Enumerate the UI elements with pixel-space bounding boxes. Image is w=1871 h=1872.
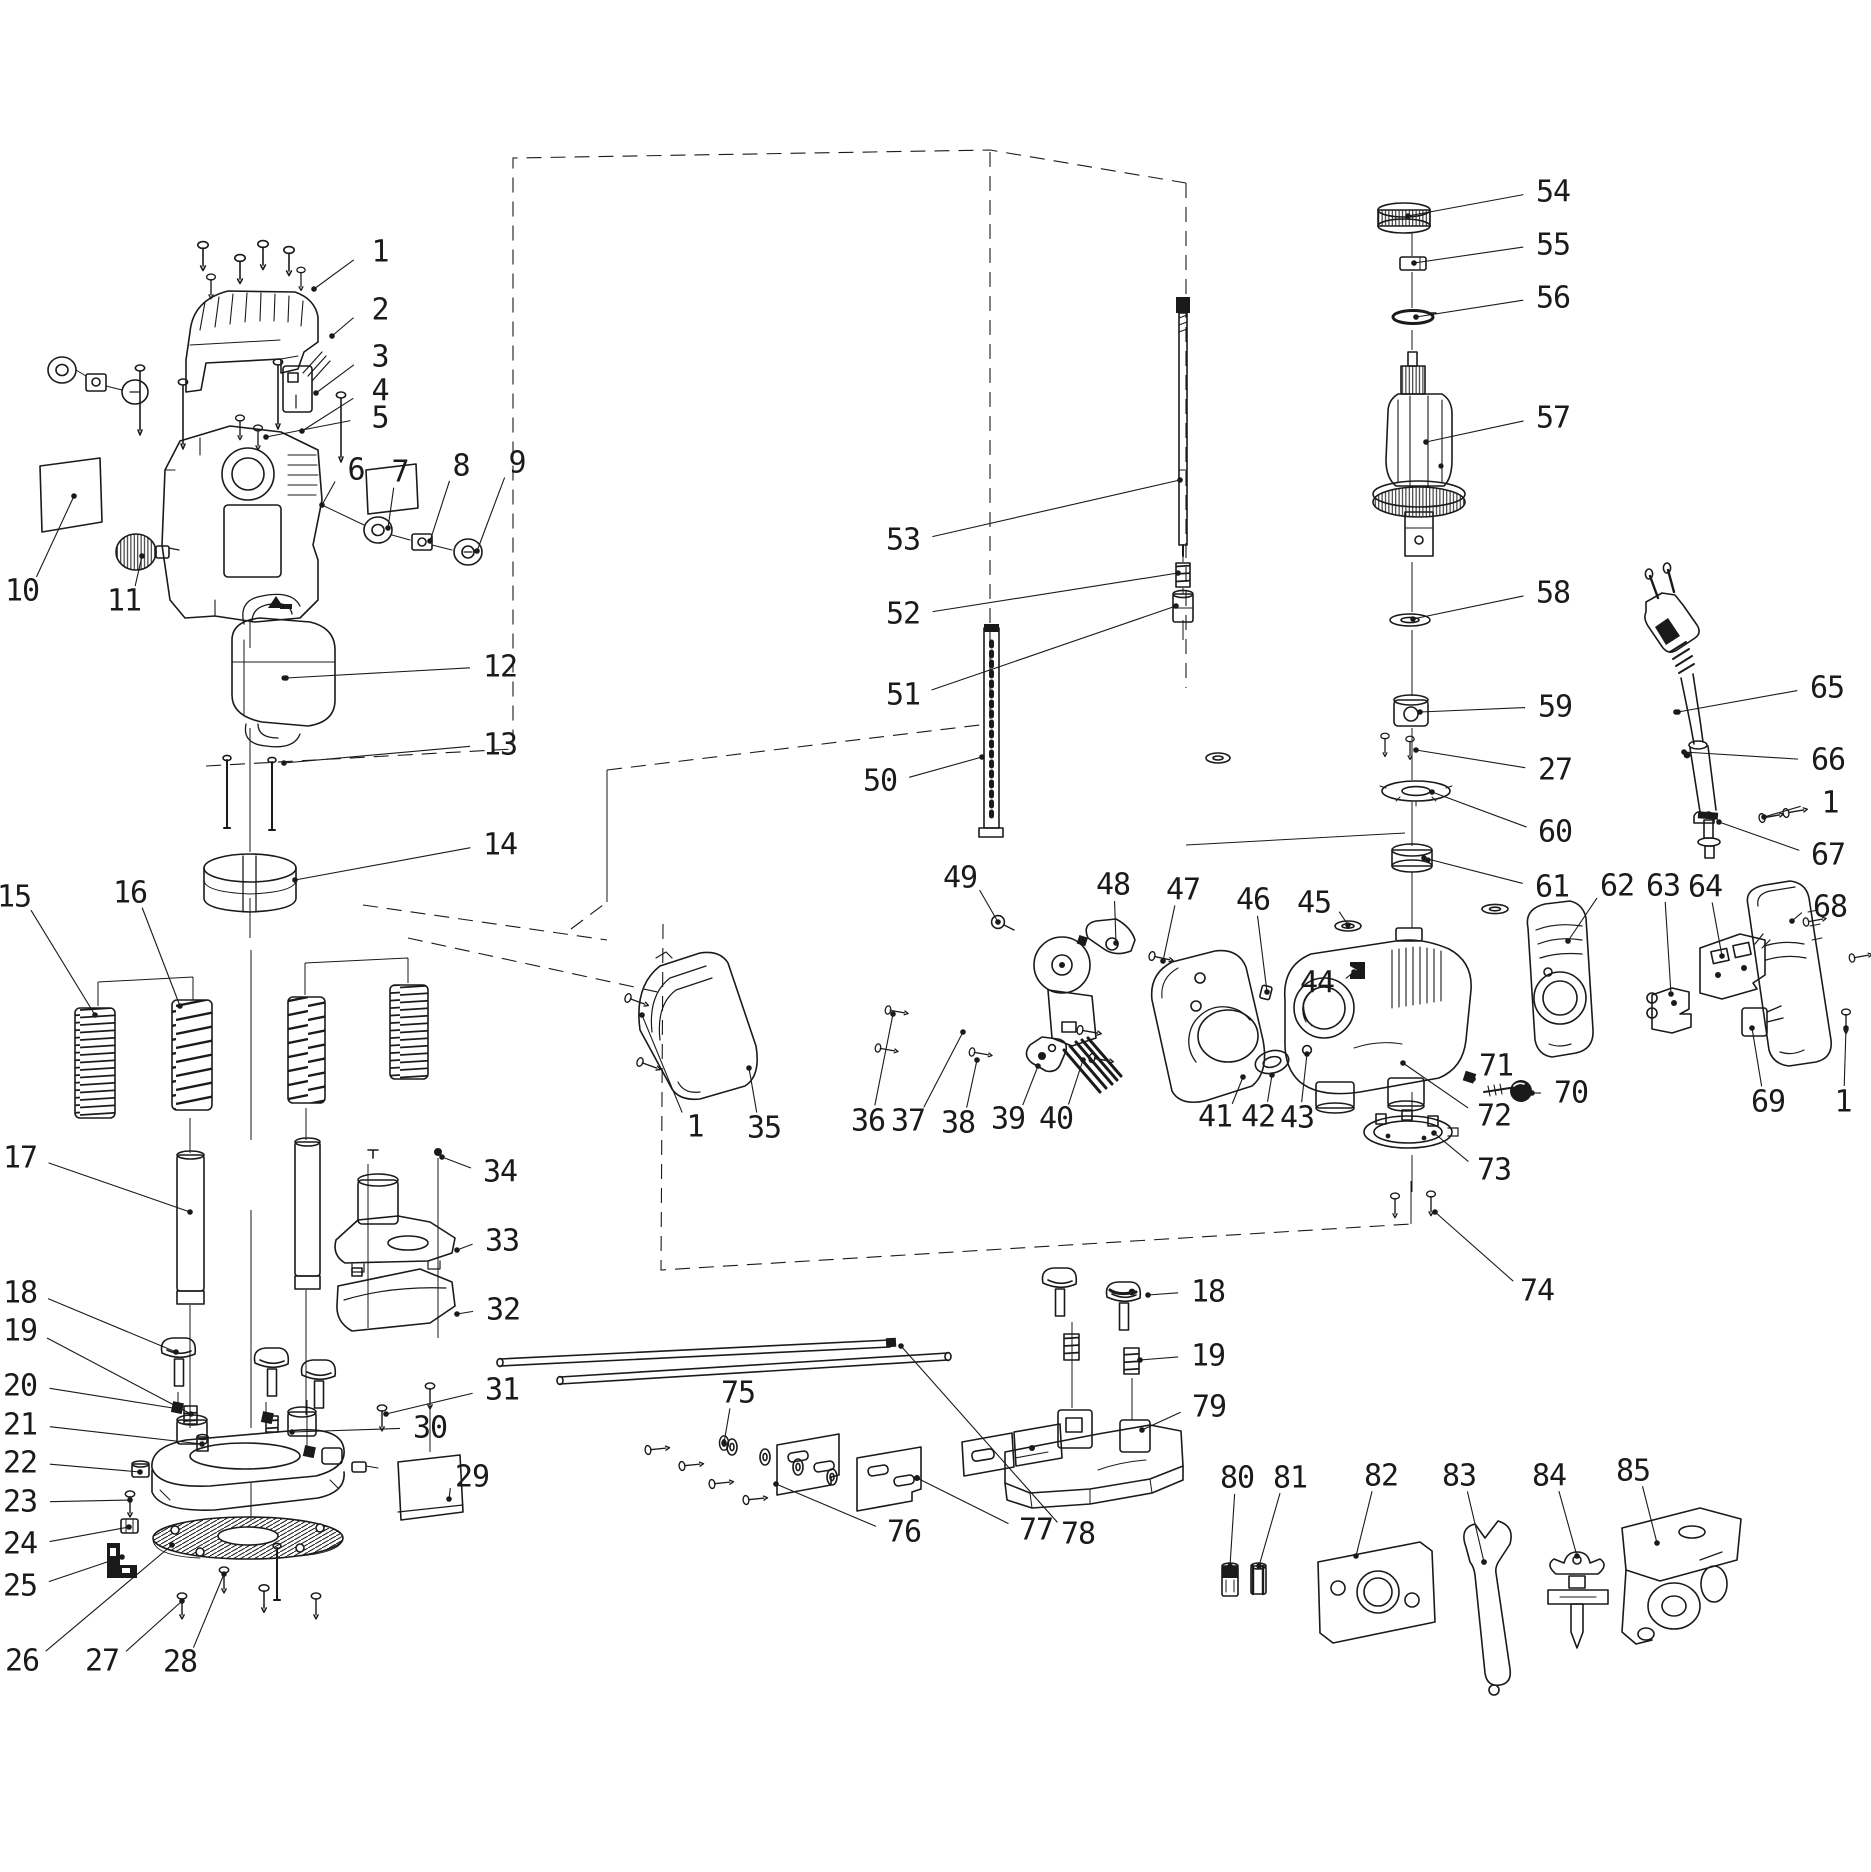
parts-artwork: [40, 203, 1871, 1695]
leader-line: [776, 1484, 876, 1526]
part-number-label: 1: [686, 1110, 703, 1145]
leader-line: [1023, 1066, 1038, 1105]
leader-dot: [1113, 940, 1119, 946]
leader-line: [48, 1299, 176, 1352]
leader-dot: [1410, 616, 1416, 622]
leader-line: [31, 910, 95, 1015]
leader-dot: [1400, 1060, 1406, 1066]
leader-line: [1420, 708, 1525, 712]
part-number-label: 9: [508, 446, 525, 481]
leader-dot: [914, 1475, 920, 1481]
part-number-label: 18: [1191, 1275, 1225, 1310]
leader-line: [50, 1427, 202, 1444]
leader-dot: [1139, 1427, 1145, 1433]
leader-dot: [1574, 1553, 1580, 1559]
part-number-label: 76: [887, 1515, 921, 1550]
leader-dot: [1240, 1074, 1246, 1080]
armature: [1373, 352, 1465, 556]
part-number-label: 50: [863, 764, 897, 799]
wrench-83: [1464, 1521, 1511, 1695]
part-number-label: 73: [1477, 1153, 1511, 1188]
leader-line: [49, 1163, 190, 1212]
part-number-label: 48: [1096, 868, 1130, 903]
leader-dot: [281, 760, 287, 766]
leader-dot: [263, 434, 269, 440]
leader-line: [332, 318, 354, 336]
depth-stop-bar: [979, 624, 1003, 837]
leader-line: [980, 890, 998, 922]
leader-line: [1414, 247, 1523, 263]
leader-line: [917, 1478, 1009, 1524]
leader-dot: [299, 428, 305, 434]
leader-dot: [746, 1065, 752, 1071]
part-number-label: 6: [347, 453, 364, 488]
leader-dot: [1035, 1063, 1041, 1069]
bearing-holder-59: [1394, 695, 1428, 726]
leader-line: [1844, 1028, 1846, 1086]
part-number-label: 45: [1297, 886, 1331, 921]
guide-bracket: [1005, 1268, 1183, 1508]
part-number-label: 74: [1520, 1274, 1554, 1309]
leader-dot: [454, 1247, 460, 1253]
part-number-label: 63: [1646, 869, 1680, 904]
leader-dot: [890, 1011, 896, 1017]
leader-dot: [173, 1349, 179, 1355]
leader-dot: [439, 1154, 445, 1160]
fence-plates: [645, 1424, 1062, 1511]
fan-baffle-60: [1206, 753, 1452, 806]
part-number-label: 55: [1536, 228, 1570, 263]
leader-dot: [176, 1406, 182, 1412]
part-number-label: 1: [1834, 1085, 1851, 1120]
leader-dot: [126, 1524, 132, 1530]
part-number-label: 1: [371, 235, 388, 270]
leader-dot: [1423, 439, 1429, 445]
leader-dot: [1654, 1540, 1660, 1546]
leader-line: [1568, 898, 1597, 941]
handle-cover-left: [624, 952, 757, 1099]
leader-dot: [1761, 814, 1767, 820]
part-number-label: 28: [163, 1645, 197, 1680]
part-number-label: 13: [483, 728, 517, 763]
part-number-label: 39: [991, 1102, 1025, 1137]
leader-dot: [1749, 1025, 1755, 1031]
leader-line: [1148, 1293, 1178, 1295]
part-number-label: 29: [455, 1460, 489, 1495]
leader-dot: [1137, 1357, 1143, 1363]
leader-dot: [329, 333, 335, 339]
part-number-label: 58: [1536, 576, 1570, 611]
leader-dot: [995, 919, 1001, 925]
leader-line: [749, 1068, 757, 1112]
leader-dot: [1565, 938, 1571, 944]
sub-base: [153, 1517, 343, 1559]
part-number-label: 78: [1061, 1517, 1095, 1552]
part-number-label: 19: [3, 1314, 37, 1349]
part-number-label: 41: [1198, 1100, 1232, 1135]
part-number-label: 43: [1280, 1101, 1314, 1136]
part-number-label: 20: [3, 1369, 37, 1404]
part-number-label: 84: [1532, 1459, 1566, 1494]
part-number-label: 75: [721, 1376, 755, 1411]
part-number-label: 7: [391, 455, 408, 490]
part-number-label: 47: [1166, 873, 1200, 908]
guide-columns: [177, 1138, 320, 1304]
leader-line: [142, 908, 180, 1006]
part-number-label: 27: [85, 1644, 119, 1679]
part-number-label: 51: [886, 678, 920, 713]
diagram-svg: 1234567891011121314151617181920212223242…: [0, 0, 1871, 1872]
leader-dot: [1264, 989, 1270, 995]
leader-dot: [639, 1012, 645, 1018]
motor-housing: [162, 426, 322, 622]
leader-dot: [974, 1057, 980, 1063]
speed-dial-module: [875, 937, 1121, 1092]
part-number-label: 65: [1810, 671, 1844, 706]
brush-set-left: [48, 357, 148, 404]
part-number-label: 23: [3, 1485, 37, 1520]
leader-dot: [1345, 922, 1351, 928]
part-number-label: 52: [886, 597, 920, 632]
leader-dot: [313, 390, 319, 396]
leader-dot: [1256, 1563, 1262, 1569]
part-number-label: 21: [3, 1408, 37, 1443]
leader-dot: [137, 1469, 143, 1475]
part-number-label: 26: [5, 1644, 39, 1679]
leader-dot: [1227, 1563, 1233, 1569]
leader-line: [933, 573, 1178, 612]
part-number-label: 60: [1538, 815, 1572, 850]
part-number-label: 59: [1538, 690, 1572, 725]
part-number-label: 57: [1536, 401, 1570, 436]
leader-line: [932, 480, 1180, 537]
leader-dot: [1719, 953, 1725, 959]
leader-line: [50, 1527, 129, 1542]
part-number-label: 16: [113, 876, 147, 911]
leader-dot: [454, 1311, 460, 1317]
leader-line: [1665, 902, 1671, 994]
leader-line: [50, 1464, 140, 1472]
leader-dot: [283, 675, 289, 681]
part-number-label: 82: [1364, 1459, 1398, 1494]
part-number-label: 64: [1688, 870, 1722, 905]
leader-dot: [289, 1429, 295, 1435]
part-number-label: 61: [1535, 870, 1569, 905]
aux-handle: [335, 1148, 455, 1331]
leader-line: [1259, 1493, 1280, 1566]
leader-line: [1115, 901, 1116, 943]
leader-line: [1302, 1054, 1307, 1102]
leader-line: [284, 746, 470, 763]
leader-dot: [1432, 1209, 1438, 1215]
brush-set-right: [322, 505, 482, 565]
leader-dot: [898, 1343, 904, 1349]
leader-line: [50, 1500, 130, 1502]
name-plate-left: [40, 458, 102, 532]
leader-line: [302, 398, 353, 431]
leader-dot: [119, 1554, 125, 1560]
leader-line: [1267, 1075, 1272, 1102]
leader-dot: [1177, 477, 1183, 483]
part-number-label: 44: [1300, 966, 1334, 1001]
leader-dot: [1304, 1051, 1310, 1057]
leader-dot: [1173, 603, 1179, 609]
leader-dot: [1405, 213, 1411, 219]
leader-dot: [721, 1440, 727, 1446]
part-number-label: 77: [1019, 1513, 1053, 1548]
leader-dot: [1269, 1072, 1275, 1078]
leader-dot: [1411, 260, 1417, 266]
leader-line: [1068, 1060, 1083, 1104]
leader-dot: [1417, 709, 1423, 715]
leader-dot: [1668, 991, 1674, 997]
leader-dot: [139, 553, 145, 559]
leader-dot: [960, 1029, 966, 1035]
leader-line: [388, 488, 394, 528]
leader-line: [1719, 822, 1799, 850]
part-number-label: 53: [886, 523, 920, 558]
leader-dot: [979, 754, 985, 760]
leader-line: [1416, 300, 1523, 317]
part-number-label: 30: [413, 1411, 447, 1446]
leader-dot: [1481, 1559, 1487, 1565]
leader-line: [1163, 905, 1175, 961]
fan-gear: [1378, 203, 1430, 233]
leader-dot: [1145, 1292, 1151, 1298]
screws-27: [1381, 733, 1414, 759]
part-number-label: 49: [943, 861, 977, 896]
leader-dot: [1160, 958, 1166, 964]
stator: [232, 594, 335, 746]
leader-dot: [311, 286, 317, 292]
part-number-label: 14: [483, 828, 517, 863]
part-number-label: 2: [371, 293, 388, 328]
leader-dot: [1413, 314, 1419, 320]
part-number-label: 40: [1039, 1102, 1073, 1137]
leader-dot: [446, 1496, 452, 1502]
leader-line: [1432, 792, 1526, 827]
part-number-label: 71: [1479, 1049, 1513, 1084]
leader-dot: [1080, 1057, 1086, 1063]
leader-dot: [1789, 918, 1795, 924]
leader-dot: [319, 502, 325, 508]
housing-screws: [135, 359, 345, 462]
leader-line: [1559, 1491, 1577, 1556]
leader-dot: [92, 1012, 98, 1018]
part-number-label: 8: [452, 449, 469, 484]
part-number-label: 67: [1811, 838, 1845, 873]
leader-dot: [1675, 709, 1681, 715]
part-number-label: 36: [851, 1104, 885, 1139]
part-number-label: 72: [1477, 1099, 1511, 1134]
part-number-label: 56: [1536, 281, 1570, 316]
leader-line: [316, 365, 354, 393]
leader-dot: [1681, 749, 1687, 755]
leader-line: [477, 478, 505, 551]
leader-dot: [1716, 819, 1722, 825]
part-number-label: 27: [1538, 753, 1572, 788]
part-number-label: 17: [3, 1141, 37, 1176]
leader-dot: [1413, 747, 1419, 753]
leader-line: [909, 757, 982, 777]
part-number-label: 31: [485, 1373, 519, 1408]
leader-dot: [199, 1441, 205, 1447]
leader-dot: [385, 525, 391, 531]
leader-dot: [169, 1542, 175, 1548]
leader-line: [875, 1014, 893, 1105]
leader-dot: [1843, 1025, 1849, 1031]
part-number-label: 24: [3, 1527, 37, 1562]
part-number-label: 68: [1813, 890, 1847, 925]
part-number-label: 3: [371, 340, 388, 375]
leader-dot: [474, 548, 480, 554]
part-number-label: 81: [1273, 1461, 1307, 1496]
leader-line: [322, 481, 335, 505]
part-number-label: 32: [486, 1293, 520, 1328]
part-number-label: 34: [483, 1155, 517, 1190]
part-number-label: 66: [1811, 743, 1845, 778]
part-number-label: 33: [485, 1224, 519, 1259]
leader-line: [442, 1157, 471, 1168]
leader-dot: [187, 1209, 193, 1215]
part-number-label: 5: [371, 401, 388, 436]
part-number-label: 62: [1600, 869, 1634, 904]
part-number-label: 1: [1821, 786, 1838, 821]
leader-line: [286, 668, 470, 678]
part-number-label: 69: [1751, 1085, 1785, 1120]
leader-line: [1424, 858, 1523, 883]
part-number-label: 12: [483, 650, 517, 685]
leader-line: [1426, 421, 1524, 442]
leader-dot: [188, 1411, 194, 1417]
part-number-label: 85: [1616, 1454, 1650, 1489]
leader-dot: [221, 1571, 227, 1577]
switch-block: [283, 352, 330, 412]
power-cord: [1645, 563, 1720, 858]
cover-screws: [198, 241, 305, 299]
leader-dot: [1429, 789, 1435, 795]
leader-dot: [71, 493, 77, 499]
leader-line: [1416, 750, 1525, 768]
template-guide-82: [1318, 1542, 1435, 1643]
leader-dot: [1353, 1553, 1359, 1559]
bearing-61: [1392, 844, 1508, 914]
leader-line: [932, 606, 1176, 690]
leader-dot: [1529, 1090, 1535, 1096]
handle-shell-right: [1152, 951, 1312, 1103]
leader-line: [1413, 596, 1524, 619]
part-number-label: 80: [1220, 1461, 1254, 1496]
leader-line: [50, 1388, 179, 1409]
circle-cutter-84: [1548, 1552, 1608, 1648]
part-number-label: 10: [5, 574, 39, 609]
leader-line: [1712, 903, 1722, 956]
leader-line: [1356, 1491, 1372, 1556]
leader-dot: [427, 538, 433, 544]
washer-58: [1390, 614, 1430, 626]
leader-dot: [773, 1481, 779, 1487]
part-number-label: 19: [1191, 1339, 1225, 1374]
part-number-label: 11: [107, 584, 141, 619]
part-number-label: 42: [1241, 1100, 1275, 1135]
leader-line: [1258, 916, 1267, 992]
leader-dot: [1421, 855, 1427, 861]
leader-line: [1230, 1494, 1235, 1566]
construction-lines: [98, 150, 1412, 1520]
part-number-label: 38: [941, 1106, 975, 1141]
gear-housing: [1285, 928, 1471, 1113]
leader-line: [430, 481, 450, 541]
leader-dot: [1175, 570, 1181, 576]
leader-dot: [127, 1497, 133, 1503]
roller-guide-85: [1622, 1508, 1741, 1644]
leader-dot: [177, 1003, 183, 1009]
shell-62: [1527, 901, 1593, 1057]
leader-line: [314, 260, 354, 289]
leader-line: [1140, 1357, 1178, 1360]
part-number-label: 25: [3, 1569, 37, 1604]
leader-line: [924, 1032, 963, 1107]
leader-line: [193, 1574, 224, 1648]
leader-dot: [1431, 1130, 1437, 1136]
leader-line: [295, 848, 470, 880]
leader-dot: [383, 1411, 389, 1417]
leader-line: [901, 1346, 1057, 1522]
leader-dot: [179, 1598, 185, 1604]
leader-dot: [292, 877, 298, 883]
leader-line: [1434, 1133, 1468, 1162]
part-number-label: 35: [747, 1111, 781, 1146]
speed-knob: [116, 534, 179, 570]
leader-line: [967, 1060, 977, 1108]
part-number-label: 83: [1442, 1459, 1476, 1494]
leader-line: [1642, 1486, 1657, 1543]
leader-line: [1435, 1212, 1513, 1281]
leader-line: [1684, 752, 1798, 759]
part-number-label: 15: [0, 880, 31, 915]
part-number-label: 22: [3, 1446, 37, 1481]
part-number-label: 18: [3, 1276, 37, 1311]
part-number-label: 46: [1236, 883, 1270, 918]
leader-dot: [1351, 969, 1357, 975]
part-number-label: 54: [1536, 175, 1570, 210]
part-number-label: 37: [891, 1104, 925, 1139]
part-number-label: 79: [1192, 1390, 1226, 1425]
leader-dot: [1470, 1076, 1476, 1082]
part-number-label: 70: [1554, 1076, 1588, 1111]
